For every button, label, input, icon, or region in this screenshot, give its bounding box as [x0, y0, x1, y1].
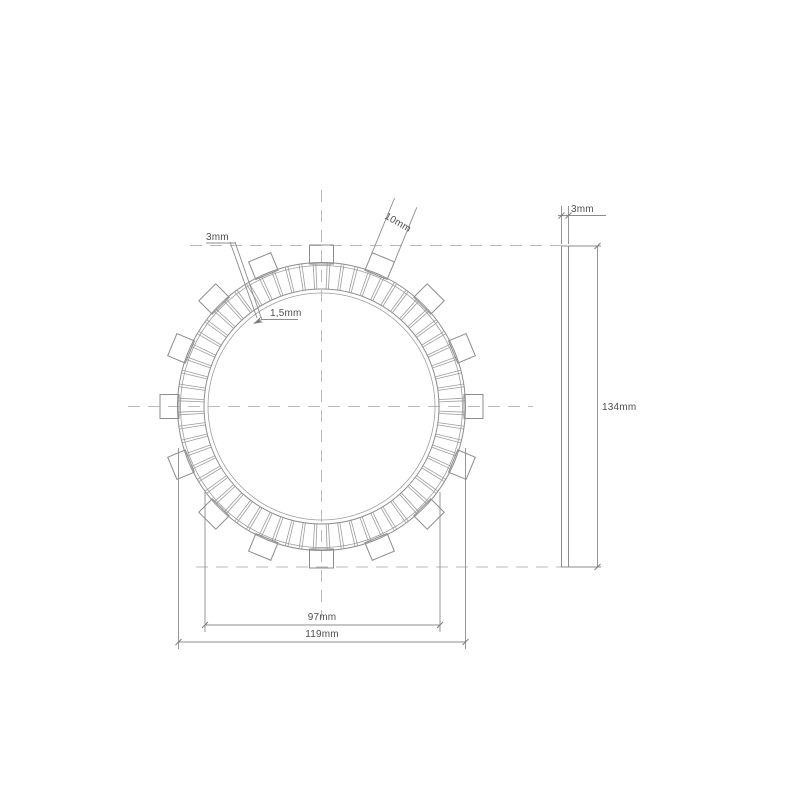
- groove-edge: [192, 458, 216, 470]
- groove-edge: [439, 401, 465, 402]
- groove-edge: [237, 290, 253, 311]
- groove-edge: [392, 500, 408, 521]
- groove-edge: [316, 524, 317, 550]
- groove-edge: [415, 477, 436, 493]
- groove-edge: [422, 331, 445, 345]
- groove-edge: [191, 456, 215, 467]
- centerlines: [128, 190, 561, 618]
- groove-edge: [423, 334, 446, 347]
- groove-edge: [216, 309, 235, 327]
- groove-edge: [224, 301, 242, 320]
- groove-edge: [408, 309, 427, 327]
- dimension-label-outer-diameter: 119mm: [305, 629, 339, 640]
- groove-edge: [259, 277, 271, 301]
- dimension-inner-diameter: 97mm: [202, 492, 443, 632]
- drive-tab: [449, 334, 476, 363]
- groove-edge: [383, 284, 397, 307]
- drive-tab: [449, 450, 476, 479]
- groove-edge: [371, 276, 382, 300]
- groove-edge: [428, 346, 452, 357]
- dimension-label-groove-inner: 1,5mm: [270, 308, 302, 319]
- groove-edge: [401, 493, 419, 512]
- drive-tab: [249, 534, 278, 561]
- groove-edge: [313, 524, 315, 550]
- groove-edge: [178, 401, 204, 402]
- groove-edge: [226, 494, 244, 514]
- groove-edge: [417, 322, 438, 338]
- groove-edge: [205, 476, 226, 492]
- groove-edge: [417, 476, 438, 492]
- groove-edge: [392, 292, 408, 313]
- groove-edge: [199, 468, 222, 482]
- leader-arrow: [254, 320, 262, 324]
- drive-tab: [249, 253, 278, 280]
- groove-edge: [427, 344, 451, 356]
- groove-edge: [237, 502, 253, 523]
- groove-edge: [371, 513, 382, 537]
- groove-edge: [224, 493, 242, 512]
- groove-edge: [400, 494, 418, 514]
- groove-edge: [400, 299, 418, 319]
- technical-drawing-page: 3mm 10mm 1,5mm 97mm 119mm 3mm: [0, 0, 800, 800]
- drive-tab: [414, 284, 444, 314]
- groove-edge: [439, 411, 465, 412]
- groove-edge: [316, 263, 317, 289]
- groove-edge: [191, 346, 215, 357]
- groove-edge: [235, 292, 251, 313]
- groove-edge: [207, 477, 228, 493]
- groove-edge: [178, 413, 204, 415]
- groove-edge: [428, 456, 452, 467]
- groove-edge: [178, 411, 204, 412]
- dimension-tab-width: 10mm: [372, 198, 417, 262]
- groove-edge: [197, 466, 220, 479]
- groove-edge: [415, 320, 436, 336]
- groove-edge: [214, 485, 234, 503]
- core-inner-circle: [208, 293, 435, 520]
- groove-edge: [328, 524, 330, 550]
- groove-edge: [326, 524, 327, 550]
- groove-edge: [216, 486, 235, 504]
- drive-tab: [199, 499, 229, 529]
- groove-edge: [408, 486, 427, 504]
- groove-edge: [261, 276, 272, 300]
- drive-tab: [199, 284, 229, 314]
- drive-tab: [168, 450, 195, 479]
- dimension-label-tab-width: 10mm: [383, 211, 413, 235]
- groove-edge: [373, 512, 385, 536]
- groove-edge: [214, 311, 234, 329]
- groove-edge: [249, 508, 262, 531]
- drive-tab: [365, 534, 394, 561]
- dimension-label-groove-outer: 3mm: [206, 232, 229, 243]
- groove-edge: [381, 282, 394, 305]
- groove-edge: [383, 507, 397, 530]
- groove-edge: [259, 512, 271, 536]
- dimension-label-inner-diameter: 97mm: [308, 612, 337, 623]
- groove-edge: [409, 311, 429, 329]
- groove-edge: [246, 507, 260, 530]
- core-outer-circle: [181, 266, 463, 548]
- groove-edge: [409, 485, 429, 503]
- groove-edge: [197, 334, 220, 347]
- groove-edge: [192, 344, 216, 356]
- groove-edge: [439, 398, 465, 400]
- groove-edge: [261, 513, 272, 537]
- groove-edge: [439, 413, 465, 415]
- groove-edge: [381, 508, 394, 531]
- dimension-label-thickness: 3mm: [571, 204, 594, 215]
- groove-edge: [235, 500, 251, 521]
- groove-edge: [391, 290, 407, 311]
- groove-edge: [373, 277, 385, 301]
- groove-edge: [422, 468, 445, 482]
- groove-edge: [226, 299, 244, 319]
- groove-edge: [178, 398, 204, 400]
- groove-edge: [328, 263, 330, 289]
- groove-edge: [427, 458, 451, 470]
- drive-tab: [365, 253, 394, 280]
- side-view-plate-edge: [562, 246, 569, 567]
- drive-tab: [168, 334, 195, 363]
- groove-edge: [423, 466, 446, 479]
- groove-edge: [391, 502, 407, 523]
- groove-edge: [207, 320, 228, 336]
- dimension-overall-diameter: 134mm: [569, 243, 636, 570]
- groove-edge: [313, 263, 315, 289]
- dimension-thickness: 3mm: [558, 204, 606, 244]
- groove-edge: [205, 322, 226, 338]
- clutch-plate-drawing: 3mm 10mm 1,5mm 97mm 119mm 3mm: [0, 0, 800, 800]
- groove-edge: [199, 331, 222, 345]
- plate-edge-outline: [562, 246, 569, 567]
- groove-edge: [326, 263, 327, 289]
- dimension-label-overall-diameter: 134mm: [602, 402, 636, 413]
- groove-edge: [401, 301, 419, 320]
